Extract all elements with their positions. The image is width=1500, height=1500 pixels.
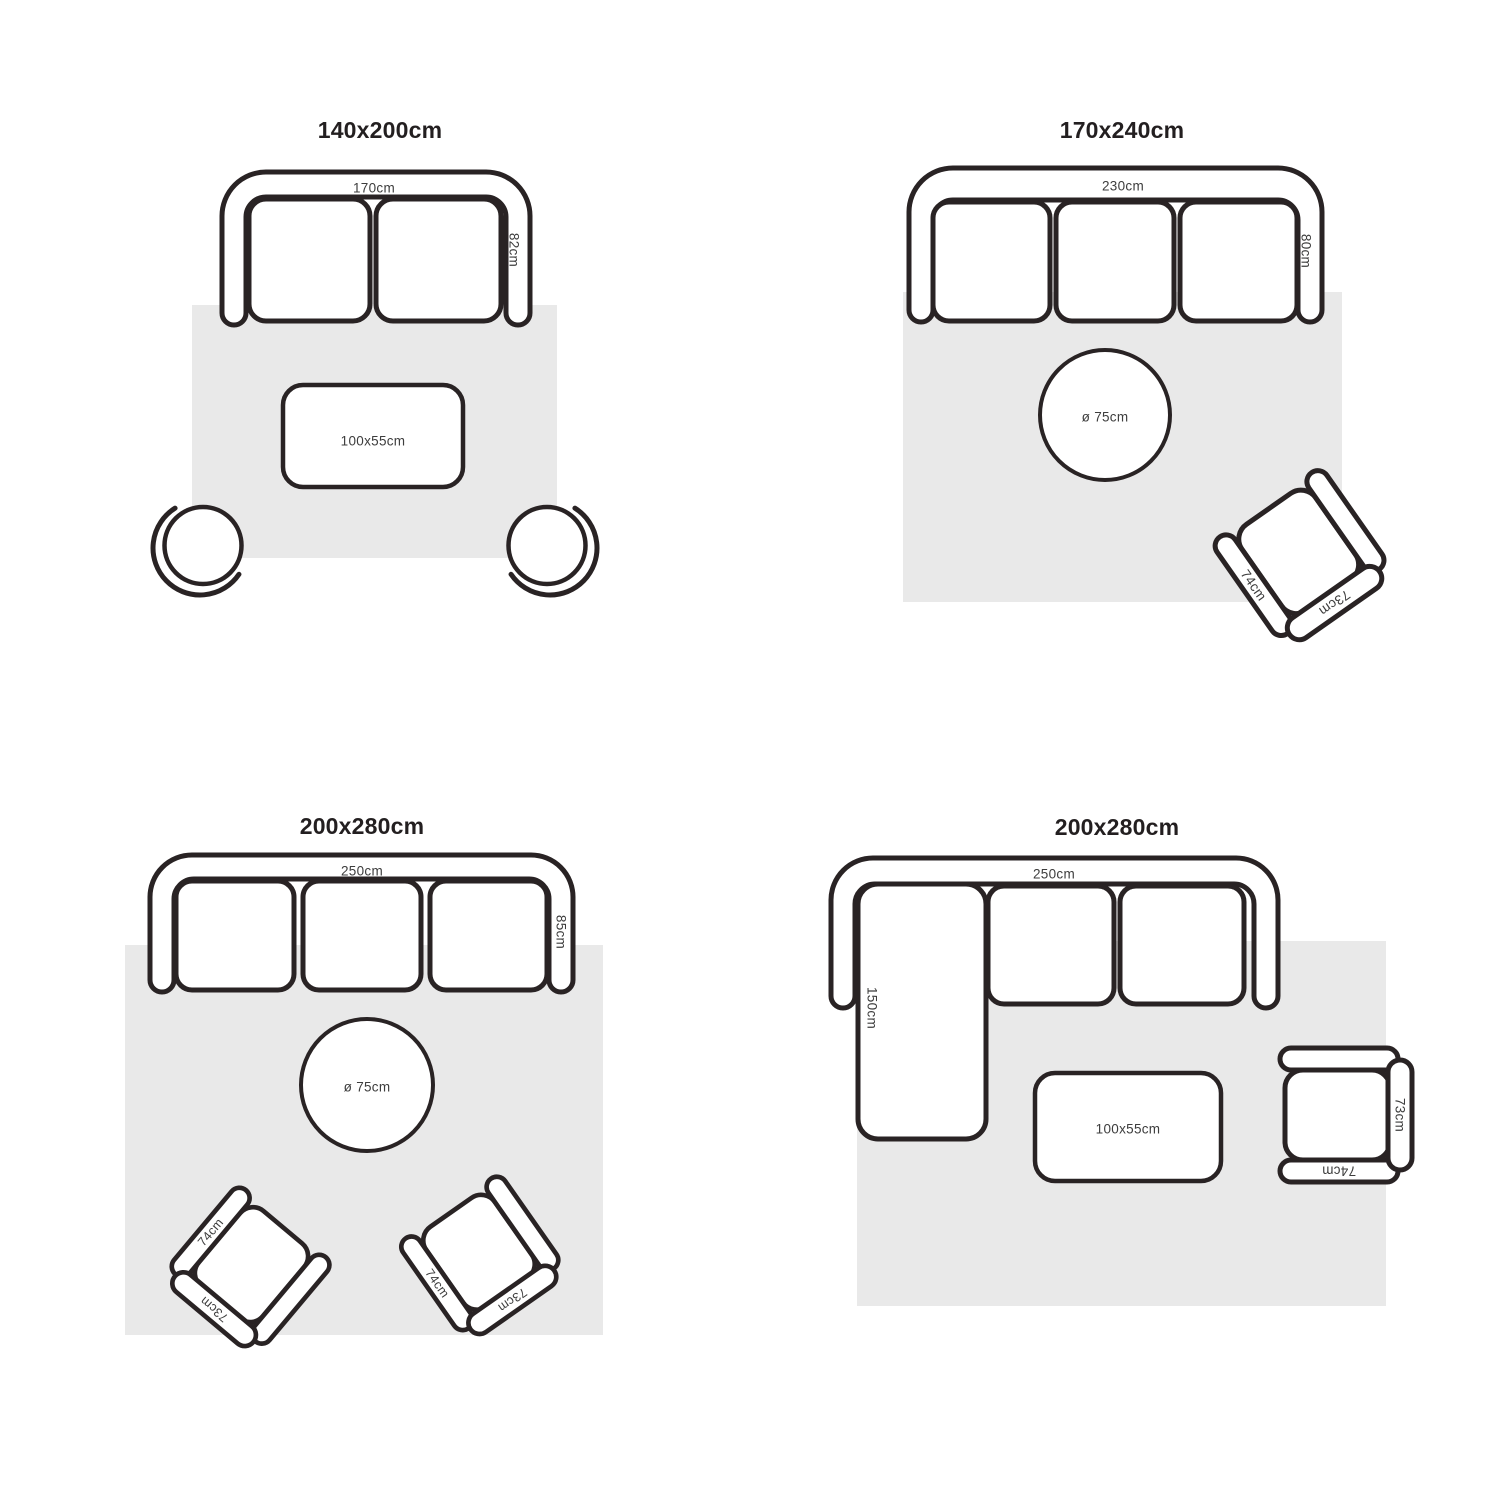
panel-1-furniture: 170cm 82cm 100x55cm xyxy=(153,172,597,595)
coffee-table: 100x55cm xyxy=(283,385,463,487)
armchair-shape xyxy=(1280,1048,1412,1182)
sofa-depth-label: 85cm xyxy=(554,915,569,949)
panel-title-3: 200x280cm xyxy=(212,813,512,840)
sofa-width-label: 230cm xyxy=(1102,179,1144,194)
armchair-right: 74cm 73cm xyxy=(397,1173,569,1345)
coffee-table: 100x55cm xyxy=(1035,1073,1221,1181)
armchair: 74cm 73cm xyxy=(1211,466,1396,651)
armchair-depth-label: 73cm xyxy=(1393,1098,1408,1132)
round-table-label: ø 75cm xyxy=(344,1080,391,1095)
armchair-shape xyxy=(1211,466,1396,651)
panel-title-2: 170x240cm xyxy=(972,117,1272,144)
round-table: ø 75cm xyxy=(1040,350,1170,480)
round-table: ø 75cm xyxy=(301,1019,433,1151)
armchair-left: 74cm 73cm xyxy=(159,1184,333,1358)
sofa-cushion xyxy=(1120,886,1244,1004)
sofa-cushion xyxy=(249,199,370,321)
panel-2-furniture: 230cm 80cm ø 75cm 74cm 73cm xyxy=(909,168,1396,651)
panel-title-4: 200x280cm xyxy=(967,814,1267,841)
furniture-layer: 170cm 82cm 100x55cm 2 xyxy=(0,0,1500,1500)
sofa-depth-label: 80cm xyxy=(1299,234,1314,268)
panel-3-furniture: 250cm 85cm ø 75cm 74cm 73cm 74cm 73cm xyxy=(150,855,573,1358)
sofa-chaise-label: 150cm xyxy=(865,987,880,1029)
armchair-shape xyxy=(397,1173,569,1345)
coffee-table-label: 100x55cm xyxy=(1096,1122,1161,1137)
coffee-table-label: 100x55cm xyxy=(341,434,406,449)
sofa-width-label: 250cm xyxy=(341,864,383,879)
sofa-cushion xyxy=(303,881,421,990)
sofa-cushion xyxy=(1056,202,1174,321)
armchair: 74cm 73cm xyxy=(1280,1048,1412,1182)
sofa-2-seat: 170cm 82cm xyxy=(222,172,530,325)
armchair-width-label: 74cm xyxy=(1322,1164,1356,1179)
sofa-depth-label: 82cm xyxy=(507,233,522,267)
swivel-chair-seat xyxy=(165,507,242,584)
round-table-label: ø 75cm xyxy=(1082,410,1129,425)
sofa-width-label: 250cm xyxy=(1033,867,1075,882)
sofa-cushion xyxy=(176,881,294,990)
sofa-cushion xyxy=(933,202,1050,321)
sofa-3-seat: 250cm 85cm xyxy=(150,855,573,992)
swivel-chair-left xyxy=(153,507,241,595)
swivel-chair-seat xyxy=(509,507,586,584)
armchair-shape xyxy=(159,1184,333,1358)
sofa-cushion xyxy=(376,199,501,321)
sofa-cushion xyxy=(430,881,547,990)
sofa-cushion xyxy=(1180,202,1297,321)
panel-4-furniture: 250cm 150cm 100x55cm 74cm 73cm xyxy=(831,858,1412,1182)
rug-size-guide: 140x200cm 170x240cm 200x280cm 200x280cm … xyxy=(0,0,1500,1500)
panel-title-1: 140x200cm xyxy=(230,117,530,144)
sofa-width-label: 170cm xyxy=(353,181,395,196)
swivel-chair-right xyxy=(509,507,597,595)
sofa-3-seat: 230cm 80cm xyxy=(909,168,1322,322)
sofa-cushion xyxy=(988,886,1114,1004)
